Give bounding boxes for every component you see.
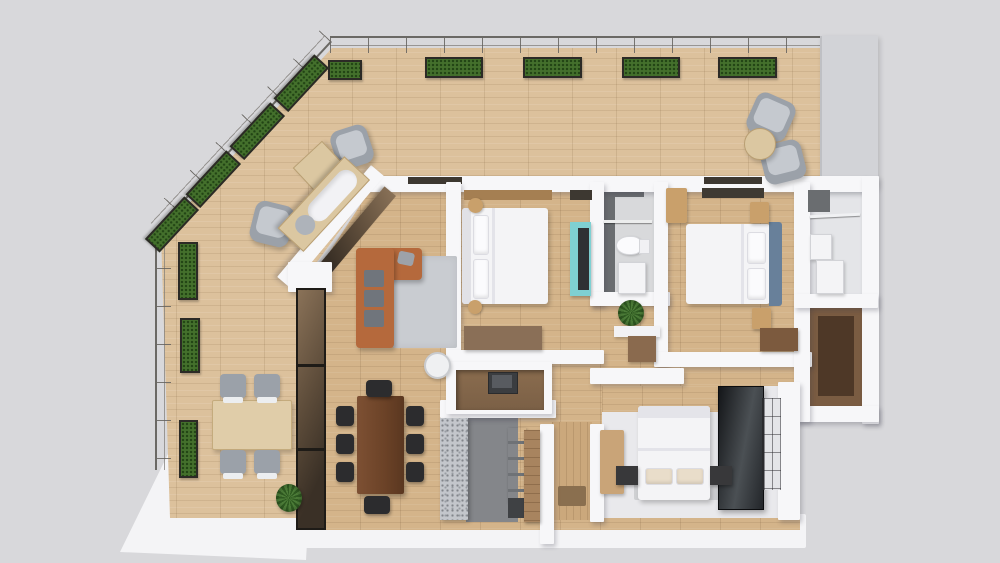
walnut-dining-table — [357, 396, 404, 494]
closet-marble-corner — [808, 190, 830, 212]
nightstand — [752, 308, 771, 329]
dining-chair — [406, 434, 424, 454]
dark-nightstand — [616, 466, 638, 485]
dark-glass-wardrobe — [718, 386, 764, 510]
side-stool — [424, 352, 451, 379]
glass-frame-line — [297, 364, 325, 367]
terrace-railing-left — [155, 230, 171, 470]
terrace-railing-top — [330, 36, 822, 53]
round-side-table — [744, 128, 776, 160]
outdoor-chair — [220, 450, 246, 474]
duvet-fold — [492, 208, 495, 304]
dark-nightstand — [710, 466, 732, 485]
outdoor-chair — [254, 374, 280, 398]
dining-chair — [406, 406, 424, 426]
planter-box — [425, 57, 483, 78]
nightstand — [750, 202, 769, 223]
headboard — [638, 406, 710, 418]
round-pouf — [468, 300, 482, 314]
pillow — [747, 232, 766, 264]
shower-rail — [604, 220, 652, 223]
dining-chair — [364, 496, 390, 514]
door-lintel — [704, 177, 762, 184]
entry-door-mat — [558, 486, 586, 506]
planter-box — [718, 57, 777, 78]
outdoor-chair — [220, 374, 246, 398]
dining-chair — [336, 406, 354, 426]
potted-plant — [276, 484, 302, 512]
dining-chair — [366, 380, 392, 397]
storage-box — [810, 234, 832, 260]
tv-panel — [578, 228, 589, 290]
bedroom2-window-band — [702, 188, 764, 198]
granite-island — [440, 418, 468, 520]
planter-box — [622, 57, 680, 78]
bedroom2-bed — [686, 224, 770, 304]
dining-chair — [336, 462, 354, 482]
planter-box — [523, 57, 582, 78]
dining-chair — [406, 462, 424, 482]
sofa-cushion — [364, 270, 384, 287]
dining-chair — [336, 434, 354, 454]
bedroom1-dark-header — [570, 190, 592, 200]
outdoor-dining-table — [212, 400, 292, 450]
outdoor-chair — [254, 450, 280, 474]
cabinet-panel — [524, 430, 540, 522]
monitor-screen — [492, 375, 512, 388]
wall-right-bottom — [798, 406, 879, 422]
bedroom2-corner-wardrobe — [666, 188, 687, 223]
glass-frame-line — [297, 448, 325, 451]
bathroom-plant — [618, 300, 644, 326]
toilet-tank — [639, 239, 650, 254]
pillow — [747, 268, 766, 300]
headboard-blue — [769, 222, 782, 306]
bedroom3-bed — [638, 406, 710, 500]
planter-box — [328, 60, 362, 80]
planter-box — [178, 242, 198, 300]
sofa-cushion — [364, 310, 384, 327]
storage-box — [816, 260, 844, 294]
wall-hall-bedroom3 — [590, 368, 684, 384]
foot-dresser — [464, 326, 542, 350]
wall-bathroom-left — [590, 182, 604, 306]
wardrobe-nook-inner — [818, 316, 854, 396]
bedroom2-desk — [760, 328, 798, 351]
duvet-fold — [638, 448, 710, 451]
wall-entry-left — [540, 424, 554, 544]
beige-pillow — [676, 468, 704, 485]
wall-bedroom2-bottom — [654, 352, 812, 367]
planter-box — [179, 420, 198, 478]
duvet-fold — [741, 224, 744, 304]
bedroom1-bed — [462, 208, 548, 304]
wall-closet-mid — [794, 294, 878, 308]
pillow — [473, 215, 489, 255]
floor-plan-render — [0, 0, 1000, 563]
planter-box — [180, 318, 200, 373]
terrace-side-wall — [820, 36, 878, 188]
bathroom-vanity — [618, 262, 646, 294]
round-pouf — [468, 198, 483, 213]
pillow — [473, 259, 489, 299]
hall-console — [628, 336, 656, 362]
wall-bedroom3-right — [778, 382, 800, 520]
beige-pillow — [645, 468, 673, 485]
sofa-cushion — [364, 290, 384, 307]
headboard — [462, 208, 471, 304]
bedroom3-window — [762, 398, 781, 490]
